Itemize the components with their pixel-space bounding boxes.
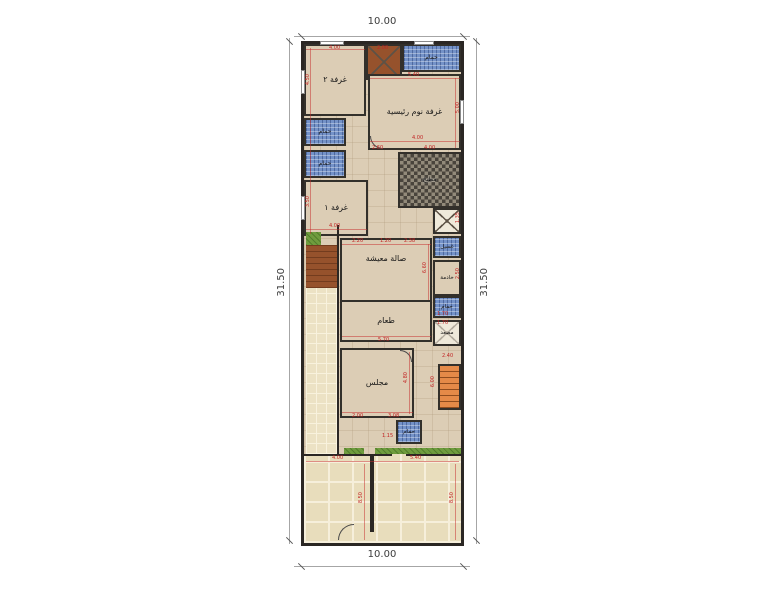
room-kitchen-label: مطبخ: [400, 154, 459, 206]
dim-top-overall: 10.00: [352, 16, 412, 27]
room-bath-left-upper-label: حمام: [306, 120, 344, 144]
room-kitchen: مطبخ: [398, 152, 461, 208]
dim-elevator-w: 1.70: [437, 321, 448, 326]
red-dim-line: [409, 352, 410, 414]
dim-line-right: [476, 38, 477, 544]
room-bedroom2-label: غرفة ٢: [306, 46, 364, 114]
dim-line-bottom: [294, 566, 470, 567]
red-dim-line: [455, 464, 456, 540]
floor-plan-canvas: 10.00 10.00 31.50 31.50 غرفة ٢ حمام: [0, 0, 768, 593]
dim-bottom-overall: 10.00: [352, 549, 412, 560]
dim-line-top: [294, 36, 470, 37]
plot-boundary: غرفة ٢ حمام غرفة نوم رئيسية حمام حمام غر…: [301, 41, 464, 546]
dim-room2-h: 4.50: [306, 74, 311, 85]
dim-kitchen-w: 4.00: [424, 146, 435, 151]
room-bath-left-lower-label: حمام: [306, 152, 344, 176]
dim-bath-right-w: 1.70: [437, 312, 448, 317]
dim-maid-h: 2.50: [456, 268, 461, 279]
wood-deck-left: [306, 245, 337, 288]
red-dim-line: [370, 78, 460, 79]
dim-room1-h: 3.50: [306, 196, 311, 207]
side-path-left: [306, 288, 337, 454]
dim-line-left: [289, 38, 290, 544]
room-living: صالة معيشة: [340, 238, 432, 302]
room-living-label: صالة معيشة: [342, 240, 430, 300]
dim-majlis-w2: 3.08: [388, 414, 399, 419]
dim-majlis-h: 4.80: [404, 372, 409, 383]
room-bedroom2: غرفة ٢: [304, 44, 366, 116]
dim-bath-guest-w: 1.15: [382, 434, 393, 439]
dim-master-h: 5.00: [456, 102, 461, 113]
dim-right-overall: 31.50: [479, 268, 490, 297]
dim-living-w3: 2.38: [404, 239, 415, 244]
dim-yard-right-h: 8.50: [450, 492, 455, 503]
dim-yard-left-h: 8.50: [359, 492, 364, 503]
dim-shaft-w: 2.00: [377, 46, 388, 51]
red-dim-line: [364, 464, 365, 540]
room-bath-guest: حمام: [396, 420, 422, 444]
dim-master-w: 5.40: [408, 73, 419, 78]
room-bath-guest-label: حمام: [398, 422, 420, 442]
room-laundry-label: غسيل: [435, 238, 459, 256]
room-bath-top-label: حمام: [404, 46, 459, 70]
dim-yard-right-w: 5.40: [410, 456, 421, 461]
dim-living-w1: 2.20: [352, 239, 363, 244]
dim-room2-w: 4.00: [329, 46, 340, 51]
yard-divider-wall: [370, 454, 374, 532]
dim-shaft2-h: 1.35: [456, 212, 461, 223]
house-south-wall: [304, 454, 392, 456]
front-yard: [304, 454, 461, 543]
house-west-wall-lower: [337, 225, 339, 456]
window: [414, 41, 434, 45]
red-dim-line: [342, 244, 431, 245]
dim-living-w2: 1.20: [380, 239, 391, 244]
dim-majlis-w1: 2.00: [352, 414, 363, 419]
dim-dining-w: 5.70: [378, 338, 389, 343]
room-bath-top: حمام: [402, 44, 461, 72]
room-laundry: غسيل: [433, 236, 461, 258]
red-dim-line: [370, 141, 460, 142]
dim-living-h: 6.60: [423, 262, 428, 273]
staircase: [438, 364, 461, 410]
dim-room1-w: 4.00: [329, 224, 340, 229]
dim-stairs-w: 2.40: [442, 354, 453, 359]
dim-hall-w: 2.60: [372, 146, 383, 151]
dim-master-w2: 4.00: [412, 136, 423, 141]
red-dim-line: [306, 461, 459, 462]
red-dim-line: [428, 244, 429, 300]
dim-left-overall: 31.50: [276, 268, 287, 297]
room-dining-label: طعام: [342, 302, 430, 340]
red-dim-line: [306, 229, 367, 230]
planter-left: [306, 232, 321, 245]
dim-stairs-h: 6.00: [431, 376, 436, 387]
dim-yard-left-w: 4.00: [332, 456, 343, 461]
